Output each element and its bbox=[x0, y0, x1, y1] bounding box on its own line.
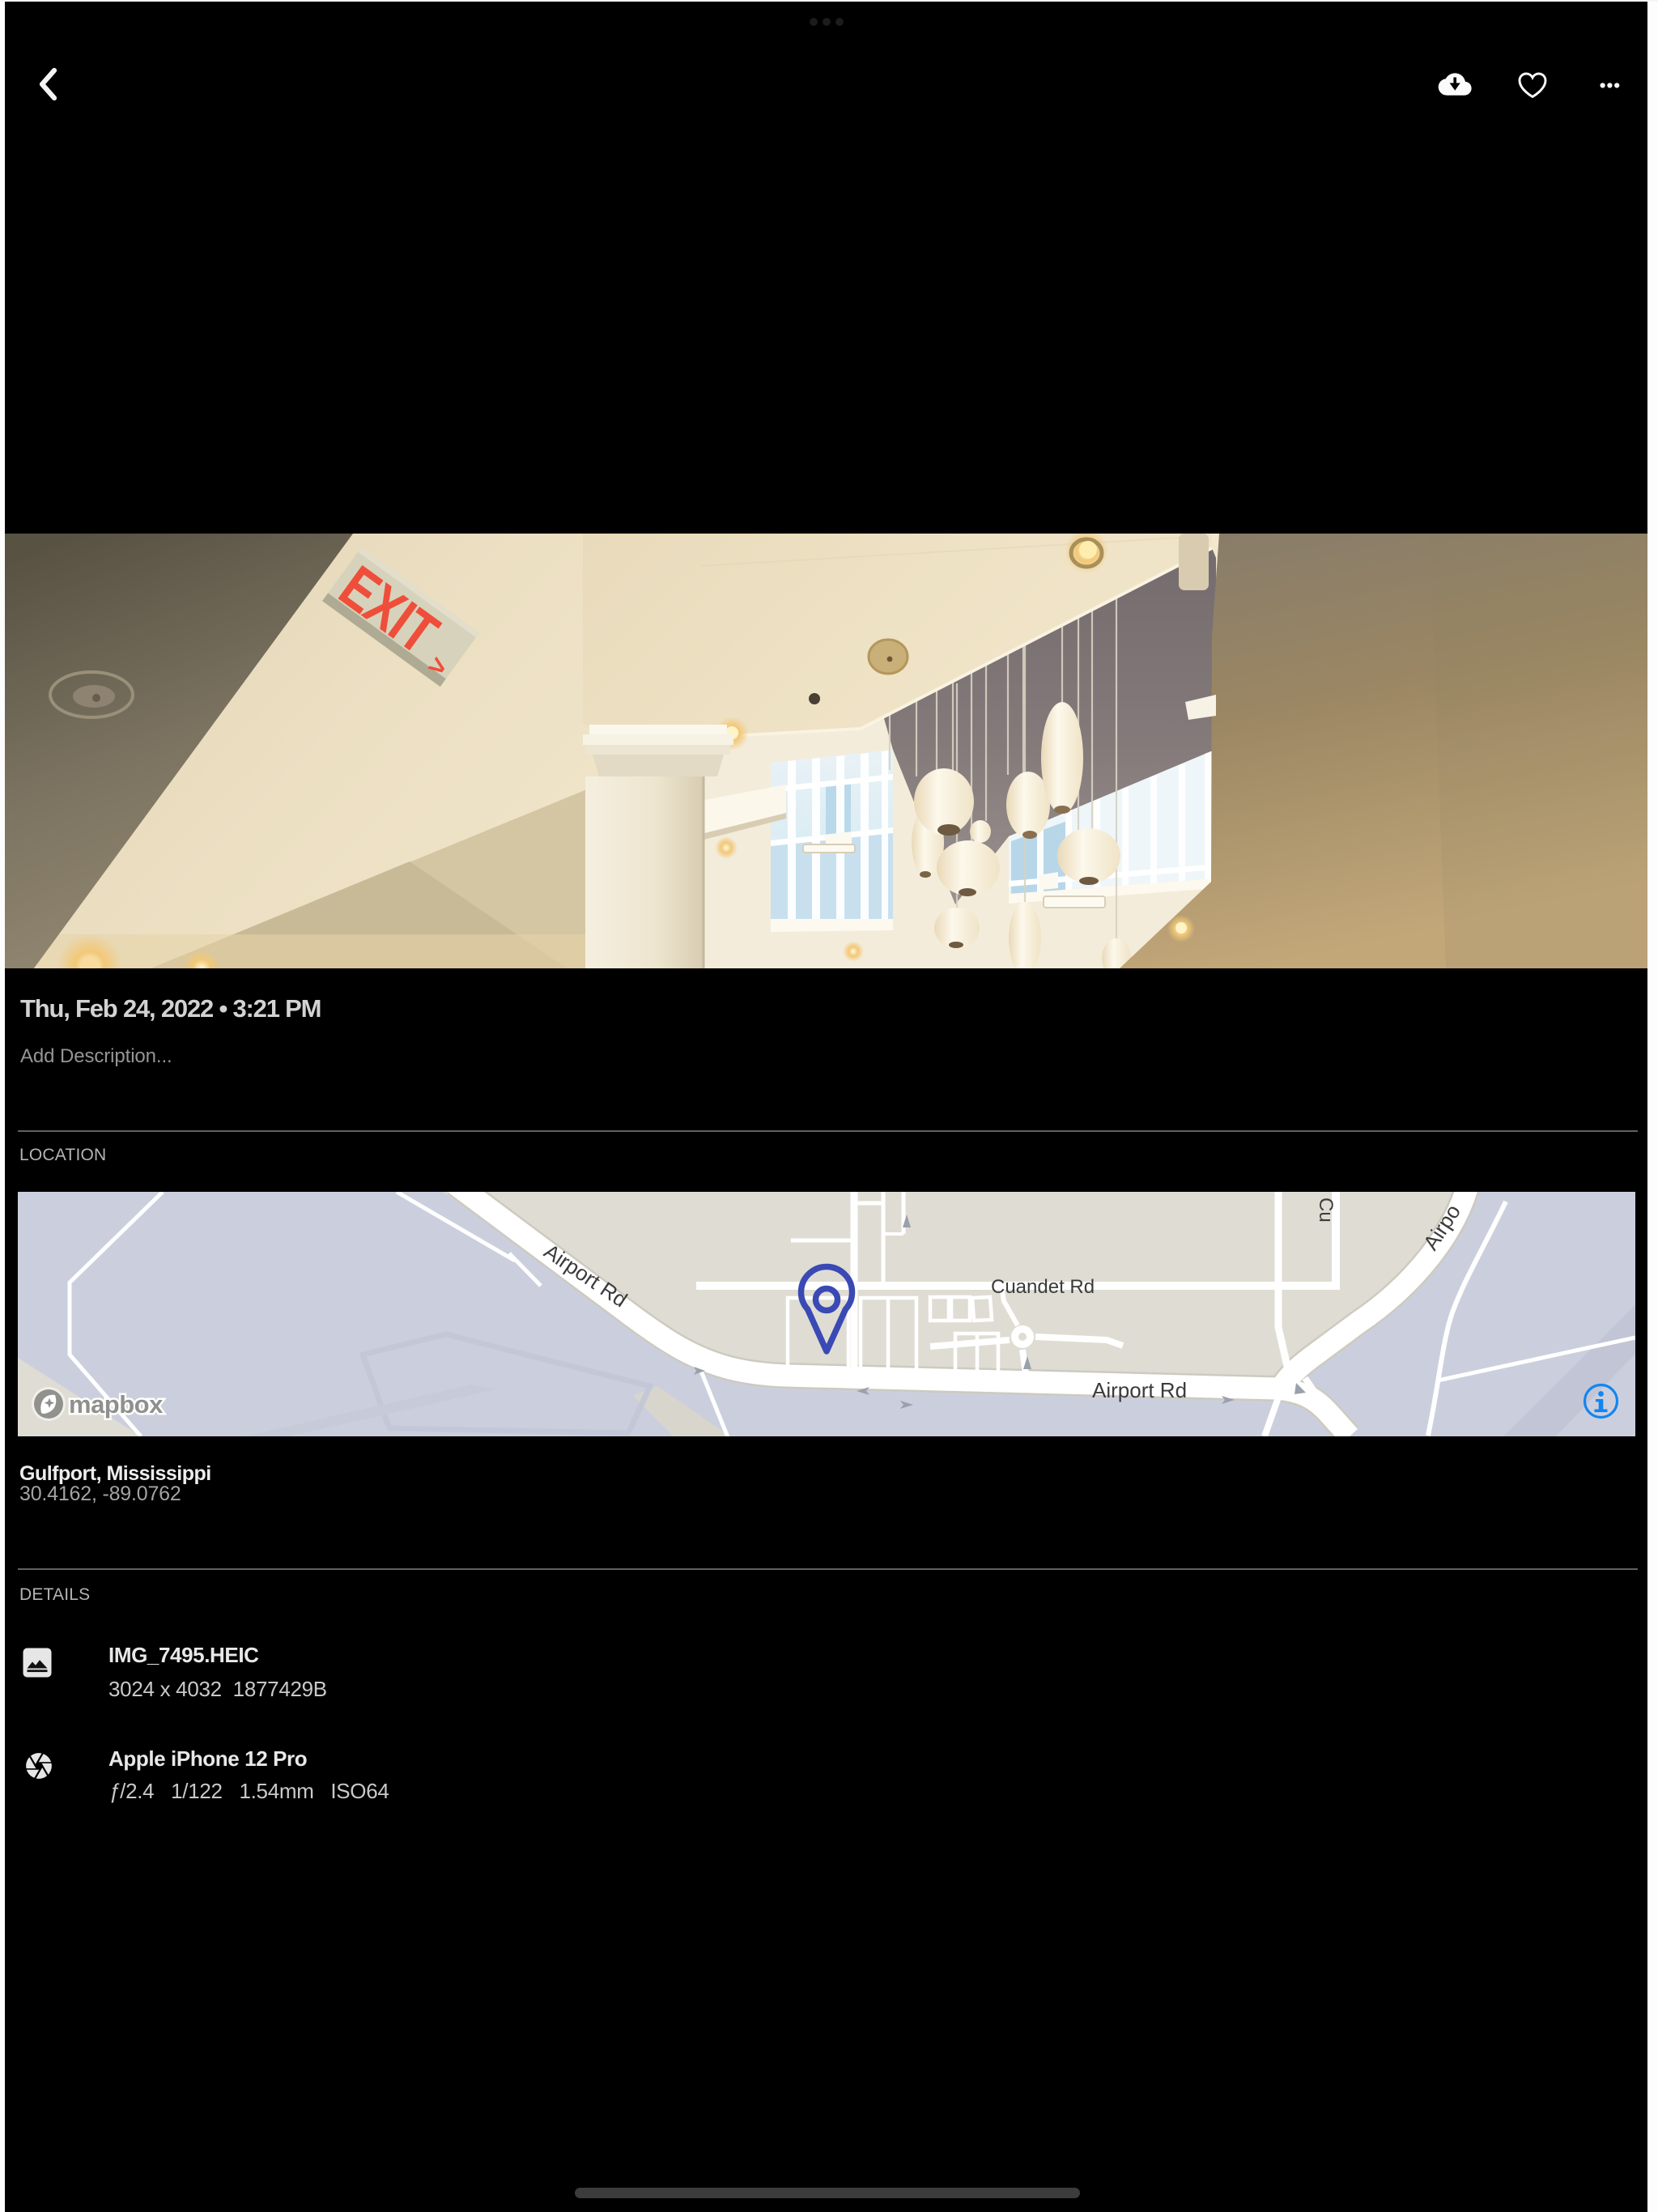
svg-text:Airport Rd: Airport Rd bbox=[1092, 1378, 1187, 1402]
svg-text:mapbox: mapbox bbox=[69, 1390, 164, 1419]
svg-text:Cu: Cu bbox=[1315, 1197, 1337, 1223]
svg-text:Cuandet Rd: Cuandet Rd bbox=[991, 1276, 1095, 1298]
